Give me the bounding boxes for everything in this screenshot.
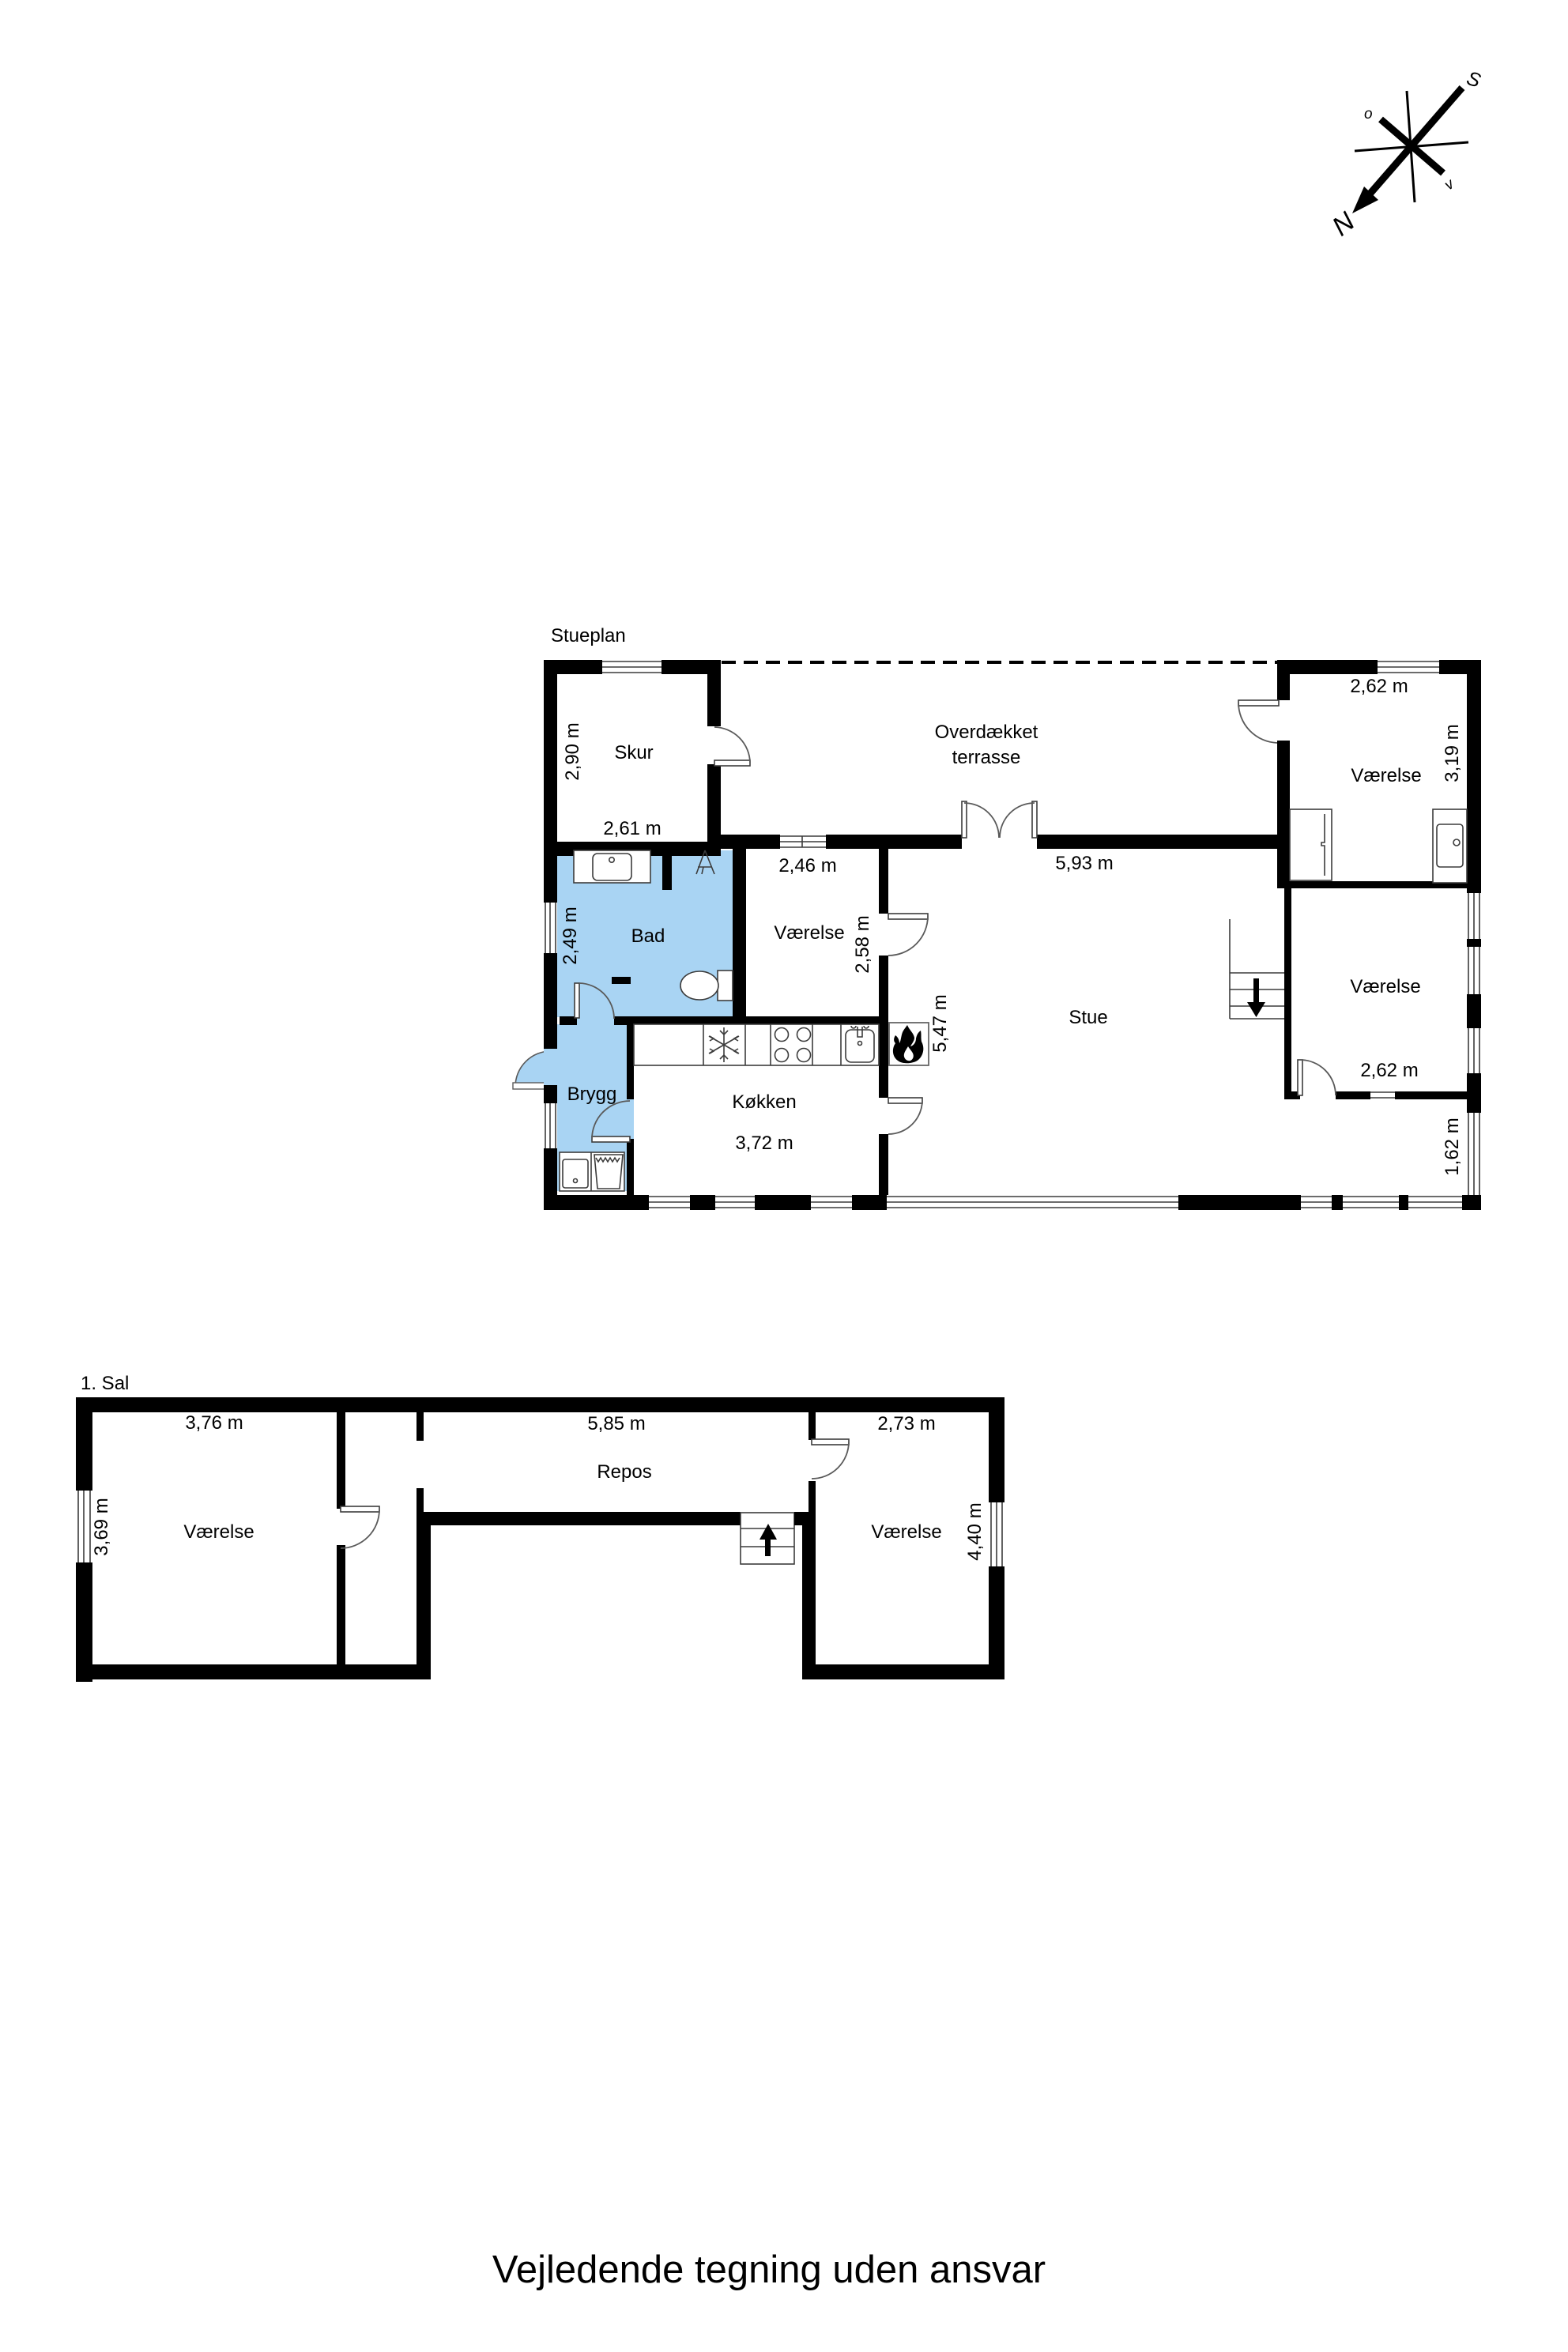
svg-text:3,19 m: 3,19 m [1442,724,1463,782]
svg-text:5,47 m: 5,47 m [929,994,951,1052]
svg-text:Stueplan: Stueplan [551,625,626,646]
svg-text:Værelse: Værelse [183,1521,254,1543]
svg-text:2,90 m: 2,90 m [562,722,583,780]
svg-text:2,46 m: 2,46 m [778,855,836,876]
svg-text:Værelse: Værelse [774,922,844,944]
svg-text:3,69 m: 3,69 m [91,1498,112,1555]
svg-text:2,62 m: 2,62 m [1360,1060,1418,1081]
svg-text:Repos: Repos [597,1461,651,1483]
svg-text:2,58 m: 2,58 m [852,915,873,973]
svg-text:2,73 m: 2,73 m [877,1413,935,1434]
svg-text:terrasse: terrasse [952,747,1021,768]
svg-text:Bad: Bad [631,925,665,947]
svg-text:1,62 m: 1,62 m [1442,1118,1463,1175]
svg-text:5,85 m: 5,85 m [587,1413,645,1434]
svg-text:Brygg: Brygg [567,1084,617,1105]
svg-text:o: o [1364,106,1373,122]
svg-text:S: S [1464,67,1483,92]
svg-text:Stue: Stue [1069,1007,1107,1028]
svg-text:2,62 m: 2,62 m [1350,676,1408,697]
svg-text:Vejledende tegning uden ansvar: Vejledende tegning uden ansvar [492,2248,1046,2291]
svg-text:Køkken: Køkken [732,1091,796,1113]
svg-text:Værelse: Værelse [871,1521,941,1543]
svg-text:Værelse: Værelse [1351,765,1421,786]
svg-text:v: v [1442,175,1458,194]
svg-text:Skur: Skur [614,742,653,763]
svg-text:1. Sal: 1. Sal [81,1373,129,1394]
svg-text:2,61 m: 2,61 m [603,818,661,839]
svg-text:5,93 m: 5,93 m [1055,853,1113,874]
svg-text:Overdækket: Overdækket [935,722,1038,743]
svg-text:2,49 m: 2,49 m [560,906,581,964]
svg-text:Værelse: Værelse [1350,976,1420,997]
svg-text:3,76 m: 3,76 m [185,1412,243,1434]
svg-text:3,72 m: 3,72 m [735,1133,793,1154]
svg-text:4,40 m: 4,40 m [964,1502,986,1560]
